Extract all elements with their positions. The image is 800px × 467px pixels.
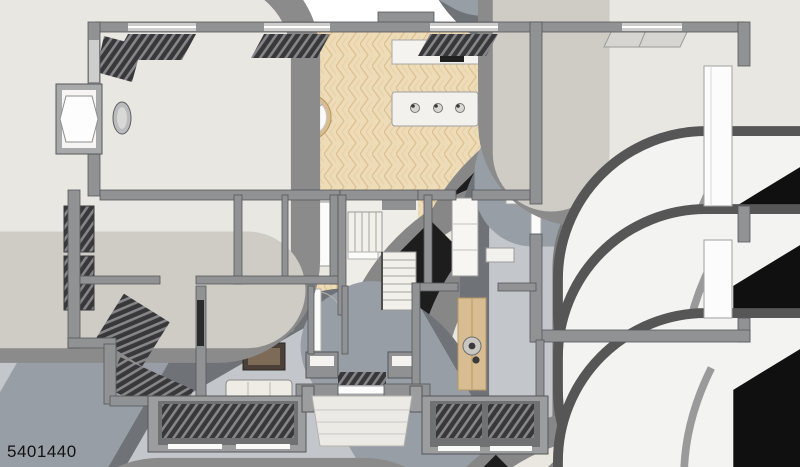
mudroom-counter: [486, 248, 514, 262]
window-sill: [438, 446, 480, 451]
entry-mat: [338, 372, 386, 385]
porch-steps: [312, 396, 412, 446]
front-door: [338, 386, 385, 394]
floor-plan-rendering: [0, 0, 800, 467]
garage-door-panel: [704, 240, 732, 318]
window-shade: [114, 34, 196, 60]
garage-door-panel: [704, 66, 732, 206]
bay-rug: [436, 404, 482, 438]
den-bay-window: [148, 396, 306, 452]
dining-bay-window: [422, 396, 548, 454]
stair-run-lower: [382, 252, 416, 310]
bay-rug: [488, 404, 534, 438]
garage-step-top: [604, 30, 688, 47]
window-sill: [168, 444, 222, 449]
island-fixtures: [411, 104, 465, 113]
stair-run-upper: [348, 212, 382, 252]
bay-rug: [162, 404, 294, 438]
tv: [197, 300, 204, 346]
mudroom-cabinet: [452, 198, 478, 276]
window-shade: [418, 34, 498, 56]
hearth: [60, 96, 98, 142]
window-sill: [236, 444, 290, 449]
stair-rail: [348, 252, 378, 259]
mls-number: 5401440: [7, 442, 77, 462]
window: [89, 40, 99, 82]
floor-plan-page: 5401440: [0, 0, 800, 467]
window-sill: [490, 446, 532, 451]
window-shade: [251, 34, 330, 58]
